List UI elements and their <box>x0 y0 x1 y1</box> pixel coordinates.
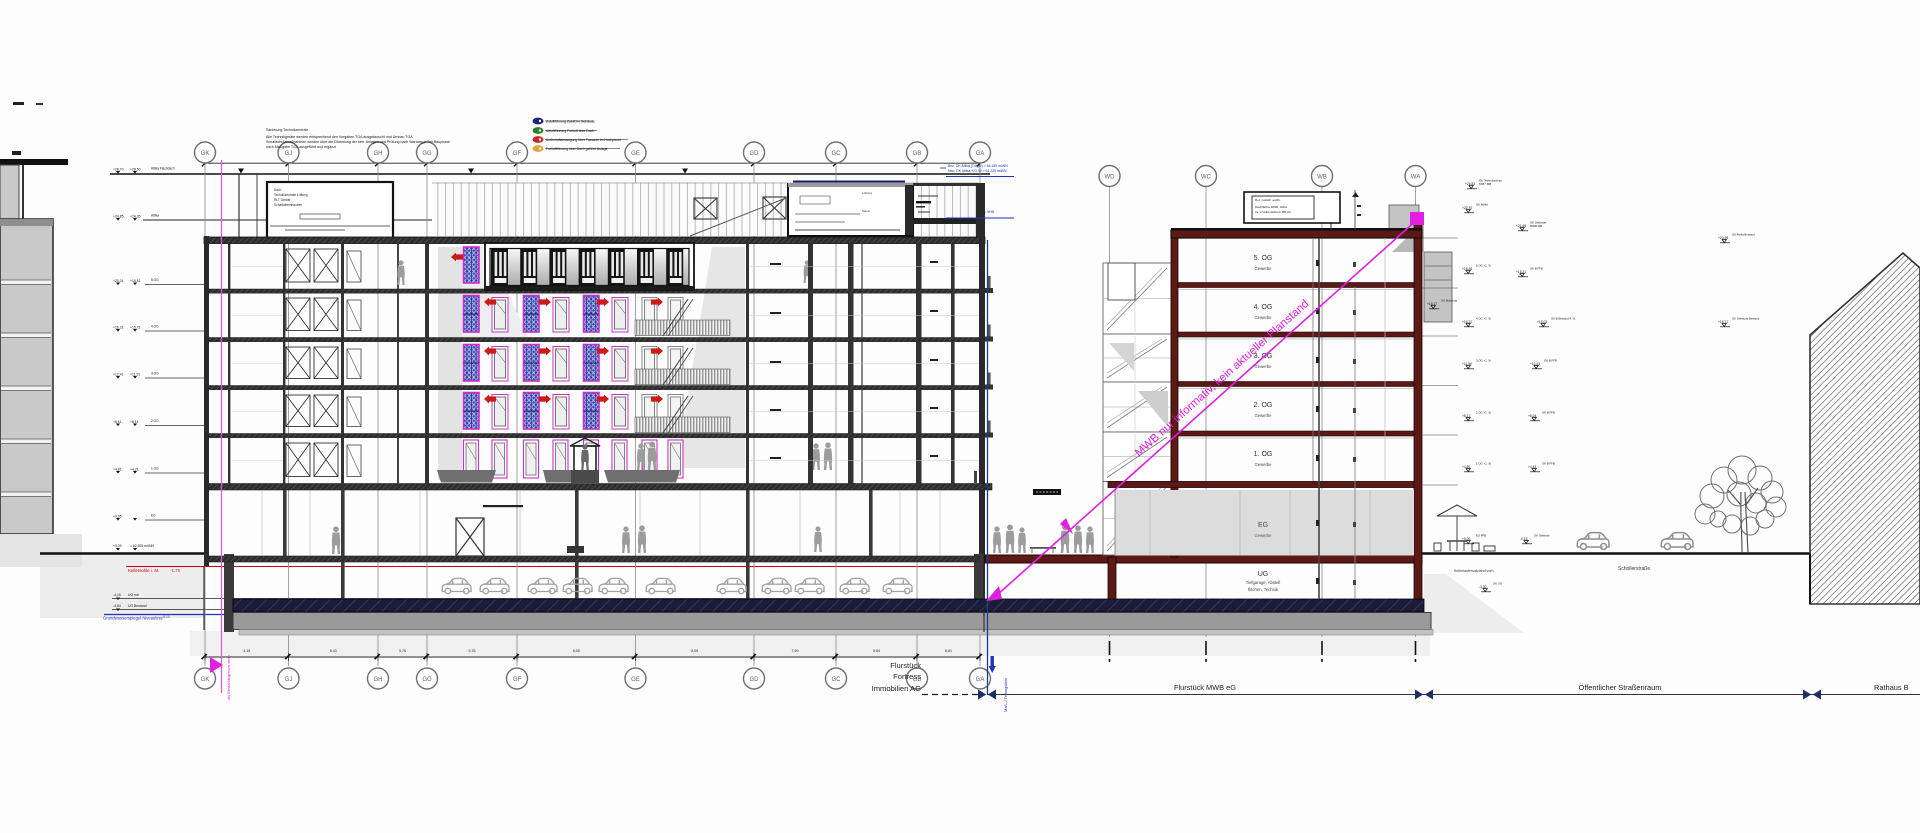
svg-text:UG: UG <box>1258 571 1269 578</box>
svg-text:Technikzentrale Lüftung: Technikzentrale Lüftung <box>274 193 308 197</box>
svg-text:OK Attika Bestand: OK Attika Bestand <box>1732 233 1755 237</box>
svg-text:GD: GD <box>750 677 760 683</box>
svg-text:4.OG +1. St: 4.OG +1. St <box>1476 317 1491 321</box>
svg-text:Alle Technikgeräte werden ents: Alle Technikgeräte werden entsprechend d… <box>266 135 413 139</box>
svg-text:EG: EG <box>1258 522 1268 529</box>
svg-text:2.OG: 2.OG <box>151 419 159 423</box>
svg-text:4.OG: 4.OG <box>151 325 159 329</box>
svg-text:-1,75: -1,75 <box>170 568 181 573</box>
svg-text:Kanal: Kanal <box>862 209 870 213</box>
svg-text:+28,50: +28,50 <box>130 168 141 172</box>
svg-text:Gewerbe: Gewerbe <box>1255 462 1273 467</box>
svg-text:EG FFB: EG FFB <box>1476 534 1486 538</box>
svg-text:R+1 zusätzl. aufzb.: R+1 zusätzl. aufzb. <box>1255 198 1281 202</box>
svg-text:+11,91: +11,91 <box>130 373 140 377</box>
svg-text:+0,95: +0,95 <box>113 515 122 519</box>
svg-text:UG roh: UG roh <box>128 593 139 597</box>
svg-text:Gewerbe: Gewerbe <box>1255 364 1273 369</box>
svg-text:Dach: Dach <box>274 188 282 192</box>
svg-text:WC: WC <box>1201 175 1212 181</box>
svg-text:5,76: 5,76 <box>469 649 476 653</box>
svg-text:5. OG: 5. OG <box>1254 255 1273 262</box>
svg-text:Maß- / Teilungslinie: Maß- / Teilungslinie <box>1003 677 1008 712</box>
svg-text:3.OG: 3.OG <box>151 372 159 376</box>
svg-text:+4,81: +4,81 <box>113 468 122 472</box>
svg-text:+0,00: +0,00 <box>113 544 122 548</box>
svg-text:Tiefgarage, Abstell: Tiefgarage, Abstell <box>1246 580 1281 585</box>
svg-text:ca. 3 Vollw./Höhenf. BB 2m: ca. 3 Vollw./Höhenf. BB 2m <box>1255 210 1292 214</box>
svg-text:Kellerlaufersatzland vorh.: Kellerlaufersatzland vorh. <box>1454 569 1495 573</box>
svg-text:+15,71: +15,71 <box>130 326 141 330</box>
svg-text:OK Gebäude Bestand: OK Gebäude Bestand <box>1732 317 1760 321</box>
svg-text:GC: GC <box>832 151 842 157</box>
svg-text:OK B Bestand 4. St: OK B Bestand 4. St <box>1551 317 1575 321</box>
svg-text:2. OG: 2. OG <box>1254 402 1273 409</box>
svg-text:+12,41: +12,41 <box>113 373 124 377</box>
svg-text:3.OG +1. St: 3.OG +1. St <box>1476 359 1491 363</box>
svg-text:Gewerbe: Gewerbe <box>1255 266 1273 271</box>
svg-text:WD: WD <box>1105 175 1116 181</box>
svg-text:OK B FFB: OK B FFB <box>1544 359 1557 363</box>
svg-text:-4,64: -4,64 <box>113 604 121 608</box>
svg-text:GB: GB <box>913 151 922 157</box>
svg-text:Öffentlicher Straßenraum: Öffentlicher Straßenraum <box>1579 683 1662 692</box>
svg-text:EG: EG <box>151 514 156 518</box>
svg-text:6,81: 6,81 <box>945 649 952 653</box>
svg-text:+4,31: +4,31 <box>130 468 139 472</box>
svg-text:GH: GH <box>374 151 383 157</box>
svg-text:8,05: 8,05 <box>691 649 698 653</box>
svg-text:5.OG +1. St: 5.OG +1. St <box>1476 264 1491 268</box>
svg-text:GD: GD <box>750 151 760 157</box>
svg-text:TAB ° MB: TAB ° MB <box>1479 182 1491 186</box>
svg-text:Gewerbe: Gewerbe <box>1255 413 1273 418</box>
svg-text:5,76: 5,76 <box>399 649 406 653</box>
svg-text:OK Brüstung: OK Brüstung <box>1441 299 1457 303</box>
svg-text:Kellersohle i. M.: Kellersohle i. M. <box>128 568 159 573</box>
svg-text:Neu: OK Attika +23,30 = 64,225: Neu: OK Attika +23,30 = 64,225 müNN <box>948 169 1007 173</box>
svg-text:GJ: GJ <box>285 677 293 683</box>
svg-text:OK B FFB: OK B FFB <box>1542 462 1555 466</box>
svg-text:GJ: GJ <box>285 151 293 157</box>
svg-text:UG Bestand: UG Bestand <box>128 604 147 608</box>
svg-text:OK B FFB: OK B FFB <box>1530 267 1543 271</box>
svg-text:-5,10: -5,10 <box>162 615 170 619</box>
svg-text:flächen, Technik: flächen, Technik <box>1248 587 1279 592</box>
svg-text:GF: GF <box>513 677 522 683</box>
svg-text:5.OG: 5.OG <box>151 278 159 282</box>
svg-text:OK UG: OK UG <box>1493 582 1502 586</box>
svg-text:GK: GK <box>201 151 210 157</box>
svg-text:8,43: 8,43 <box>330 649 337 653</box>
svg-text:GF: GF <box>513 151 522 157</box>
svg-text:Grundwasserspiegel Niveaulinie: Grundwasserspiegel Niveaulinie <box>103 616 163 621</box>
svg-text:Gewerbe: Gewerbe <box>1255 315 1273 320</box>
svg-text:nach Maßgabe TGA ausgeführt un: nach Maßgabe TGA ausgeführt und ergänzt <box>266 145 336 149</box>
svg-text:als Bestandsgrenze verm.: als Bestandsgrenze verm. <box>226 654 231 700</box>
svg-text:Fortluftführung über Dach gefü: Fortluftführung über Dach geführt Anlage <box>546 147 608 151</box>
svg-text:+19,51: +19,51 <box>130 279 141 283</box>
svg-text:4. OG: 4. OG <box>1254 304 1273 311</box>
svg-text:-4,15: -4,15 <box>113 593 121 597</box>
svg-text:RLT Geräte: RLT Geräte <box>274 198 291 202</box>
svg-text:WA: WA <box>1411 175 1420 181</box>
svg-text:2.OG +1. St: 2.OG +1. St <box>1476 411 1491 415</box>
svg-text:+8,61: +8,61 <box>113 420 122 424</box>
svg-text:7,99: 7,99 <box>792 649 799 653</box>
svg-text:1. OG: 1. OG <box>1254 451 1273 458</box>
svg-text:Flurstück: Flurstück <box>890 661 921 670</box>
svg-text:Schalldämmhauben: Schalldämmhauben <box>274 203 302 207</box>
svg-text:Lüftung: Lüftung <box>862 191 872 195</box>
svg-text:+8,11: +8,11 <box>130 420 138 424</box>
svg-text:GE: GE <box>631 151 640 157</box>
svg-text:Attika: Attika <box>151 214 159 218</box>
svg-text:GG: GG <box>422 677 432 683</box>
svg-text:Zuluftführung Zuluft im Gebäud: Zuluftführung Zuluft im Gebäude <box>546 119 595 123</box>
svg-text:Fortress: Fortress <box>893 672 921 681</box>
svg-text:Außenluftansaugung über Fassad: Außenluftansaugung über Fassade im Hochp… <box>546 138 621 142</box>
svg-text:Schollerstraße: Schollerstraße <box>1618 566 1650 572</box>
svg-text:WB: WB <box>1317 175 1327 181</box>
svg-text:Flurstück MWB eG: Flurstück MWB eG <box>1174 683 1236 692</box>
svg-text:= 62,925 müNN: = 62,925 müNN <box>130 544 154 548</box>
svg-text:4,15: 4,15 <box>243 649 250 653</box>
svg-text:+24,35: +24,35 <box>130 215 141 219</box>
svg-text:GC: GC <box>832 677 842 683</box>
svg-text:Gewerbe: Gewerbe <box>1255 533 1273 538</box>
svg-text:Sanierung Technikzentrale: Sanierung Technikzentrale <box>266 128 308 132</box>
svg-text:GK: GK <box>201 677 210 683</box>
svg-text:5,84: 5,84 <box>873 649 880 653</box>
svg-text:+28,70: +28,70 <box>113 168 124 172</box>
svg-text:+24,85: +24,85 <box>113 215 124 219</box>
svg-text:GE: GE <box>631 677 640 683</box>
svg-text:Immobilien AG: Immobilien AG <box>872 684 921 693</box>
svg-text:+16,21: +16,21 <box>113 326 124 330</box>
svg-text:GG: GG <box>422 151 432 157</box>
svg-text:OK B FFB: OK B FFB <box>1542 411 1555 415</box>
svg-text:OK Attika: OK Attika <box>1476 203 1488 207</box>
svg-text:Schallschutzmaßnahmen werden ü: Schallschutzmaßnahmen werden über die Dä… <box>266 140 450 144</box>
svg-text:MWB WB: MWB WB <box>1530 224 1542 228</box>
svg-text:GA: GA <box>976 677 985 683</box>
svg-text:1.OG: 1.OG <box>151 467 159 471</box>
svg-text:Rathaus B: Rathaus B <box>1874 683 1909 692</box>
svg-text:GA: GA <box>976 151 985 157</box>
svg-text:Abluftführung Fortluft über Da: Abluftführung Fortluft über Dach <box>546 129 594 133</box>
svg-text:GH: GH <box>374 677 383 683</box>
svg-text:OK Gelände: OK Gelände <box>1534 534 1550 538</box>
svg-text:Bez. OK Attika (Träger) = 64,1: Bez. OK Attika (Träger) = 64,185 müNN <box>948 164 1008 168</box>
svg-text:+20,01: +20,01 <box>113 279 124 283</box>
svg-text:1.OG +1. St: 1.OG +1. St <box>1476 462 1491 466</box>
svg-text:Attika Flachdach: Attika Flachdach <box>151 167 175 171</box>
svg-text:8,05: 8,05 <box>573 649 580 653</box>
svg-text:Dachfläche MWB, Höhe: Dachfläche MWB, Höhe <box>1255 205 1287 209</box>
